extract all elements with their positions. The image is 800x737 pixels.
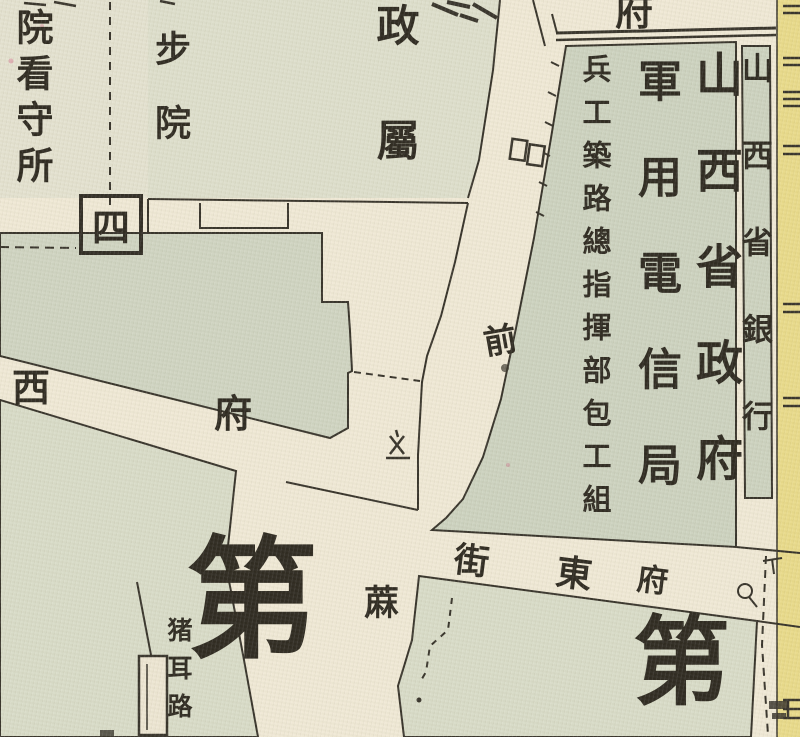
label-government-branch-partial: 政屬 (372, 3, 415, 233)
street-label-ma: 蔴 (364, 586, 399, 621)
block-top-center (148, 0, 500, 198)
district-number: 四 (92, 197, 130, 252)
label-detention-house: 院看守所 (12, 8, 49, 192)
label-military-telegraph-bureau: 軍用電信局 (633, 58, 677, 538)
street-label-fuxi-fu: 府 (214, 396, 252, 434)
map-canvas: 院看守所 步院 四 政屬 府 山西省政府 軍用電信局 兵工築路總指揮部包工組 山… (0, 0, 800, 737)
district-number-box: 四 (79, 194, 143, 255)
dash-endpoint-dot (417, 698, 422, 703)
street-label-fudong-fu: 府 (635, 563, 670, 598)
label-di-large-left: 第 (186, 536, 318, 668)
street-label-fudong-dong: 東 (554, 554, 594, 594)
label-fu-partial: 府 (615, 0, 653, 32)
label-shanxi-provincial-government: 山西省政府 (690, 50, 737, 530)
label-shanxi-provincial-bank: 山西省銀行 (739, 52, 770, 487)
label-di-large-right: 第 (633, 615, 730, 712)
label-road-construction-hq: 兵工築路總指揮部包工組 (579, 54, 608, 527)
label-court-partial: 步院 (152, 30, 188, 178)
street-label-fuxi-xi: 西 (12, 370, 50, 408)
street-label-qian: 前 (481, 323, 519, 361)
street-label-fudong-jie: 街 (452, 542, 491, 581)
